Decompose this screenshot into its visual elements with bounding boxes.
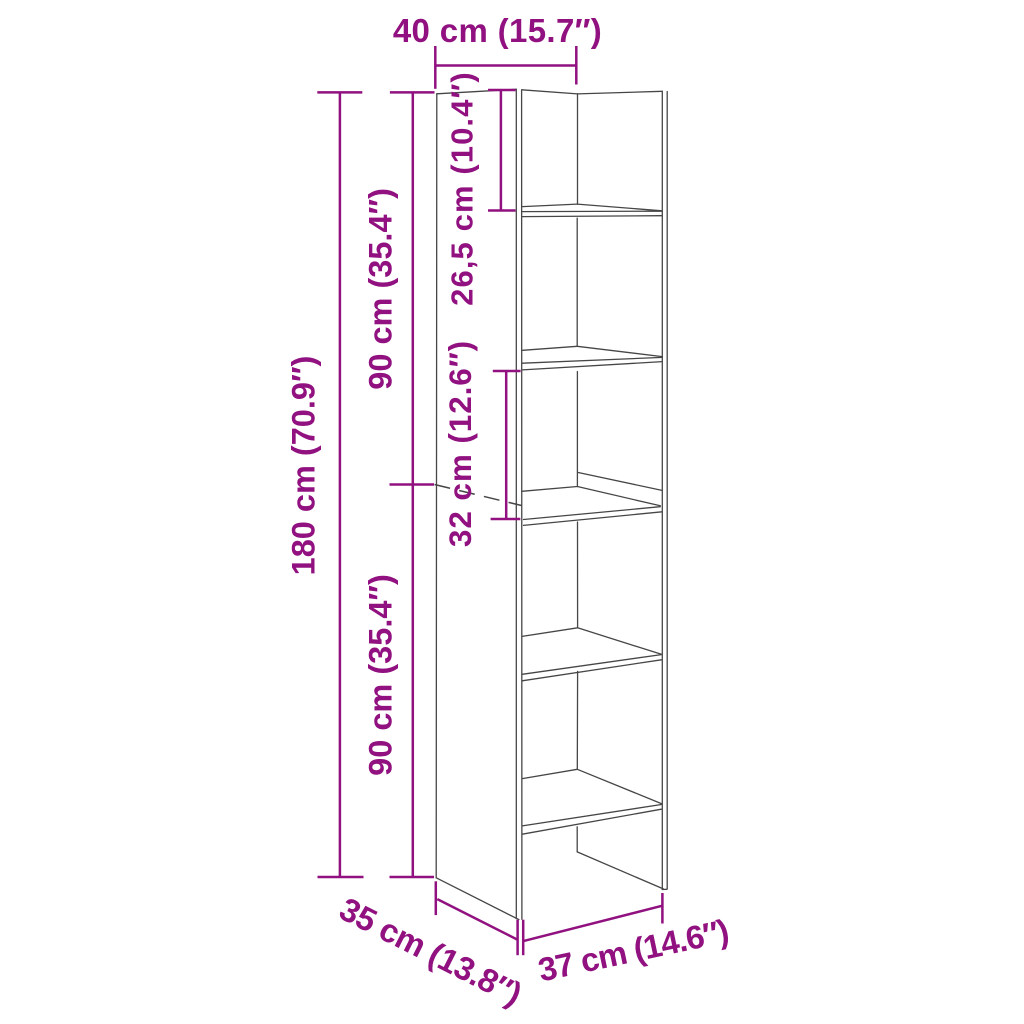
svg-text:90 cm (35.4″): 90 cm (35.4″) — [363, 574, 399, 776]
svg-text:32 cm (12.6″): 32 cm (12.6″) — [442, 340, 478, 547]
svg-text:40 cm (15.7″): 40 cm (15.7″) — [393, 12, 602, 49]
svg-text:90 cm (35.4″): 90 cm (35.4″) — [363, 188, 399, 390]
svg-text:26,5 cm (10.4″): 26,5 cm (10.4″) — [444, 71, 479, 306]
svg-text:180 cm (70.9″): 180 cm (70.9″) — [286, 356, 322, 576]
